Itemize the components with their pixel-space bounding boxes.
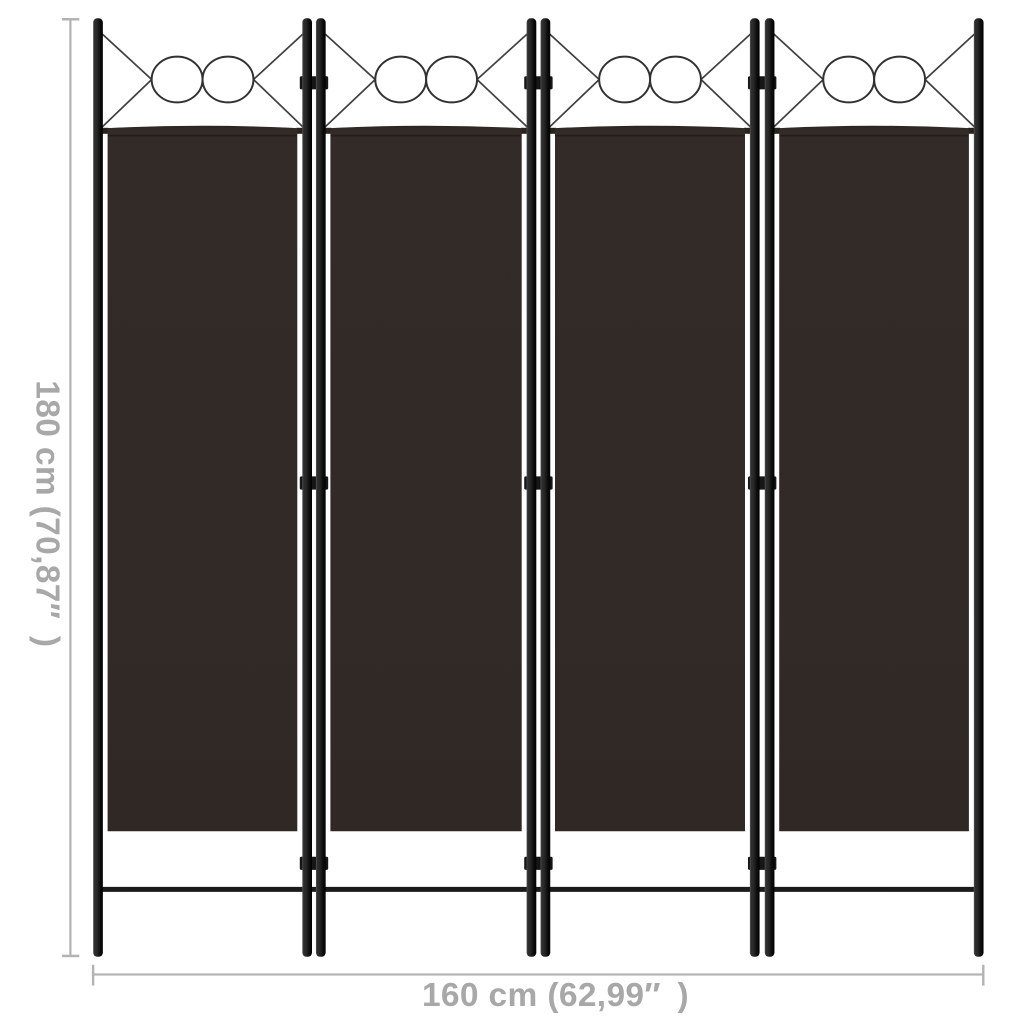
- svg-text:160 cm (62,99″ ): 160 cm (62,99″ ): [422, 977, 689, 1014]
- svg-text:180 cm (70,87″ ): 180 cm (70,87″ ): [29, 380, 66, 647]
